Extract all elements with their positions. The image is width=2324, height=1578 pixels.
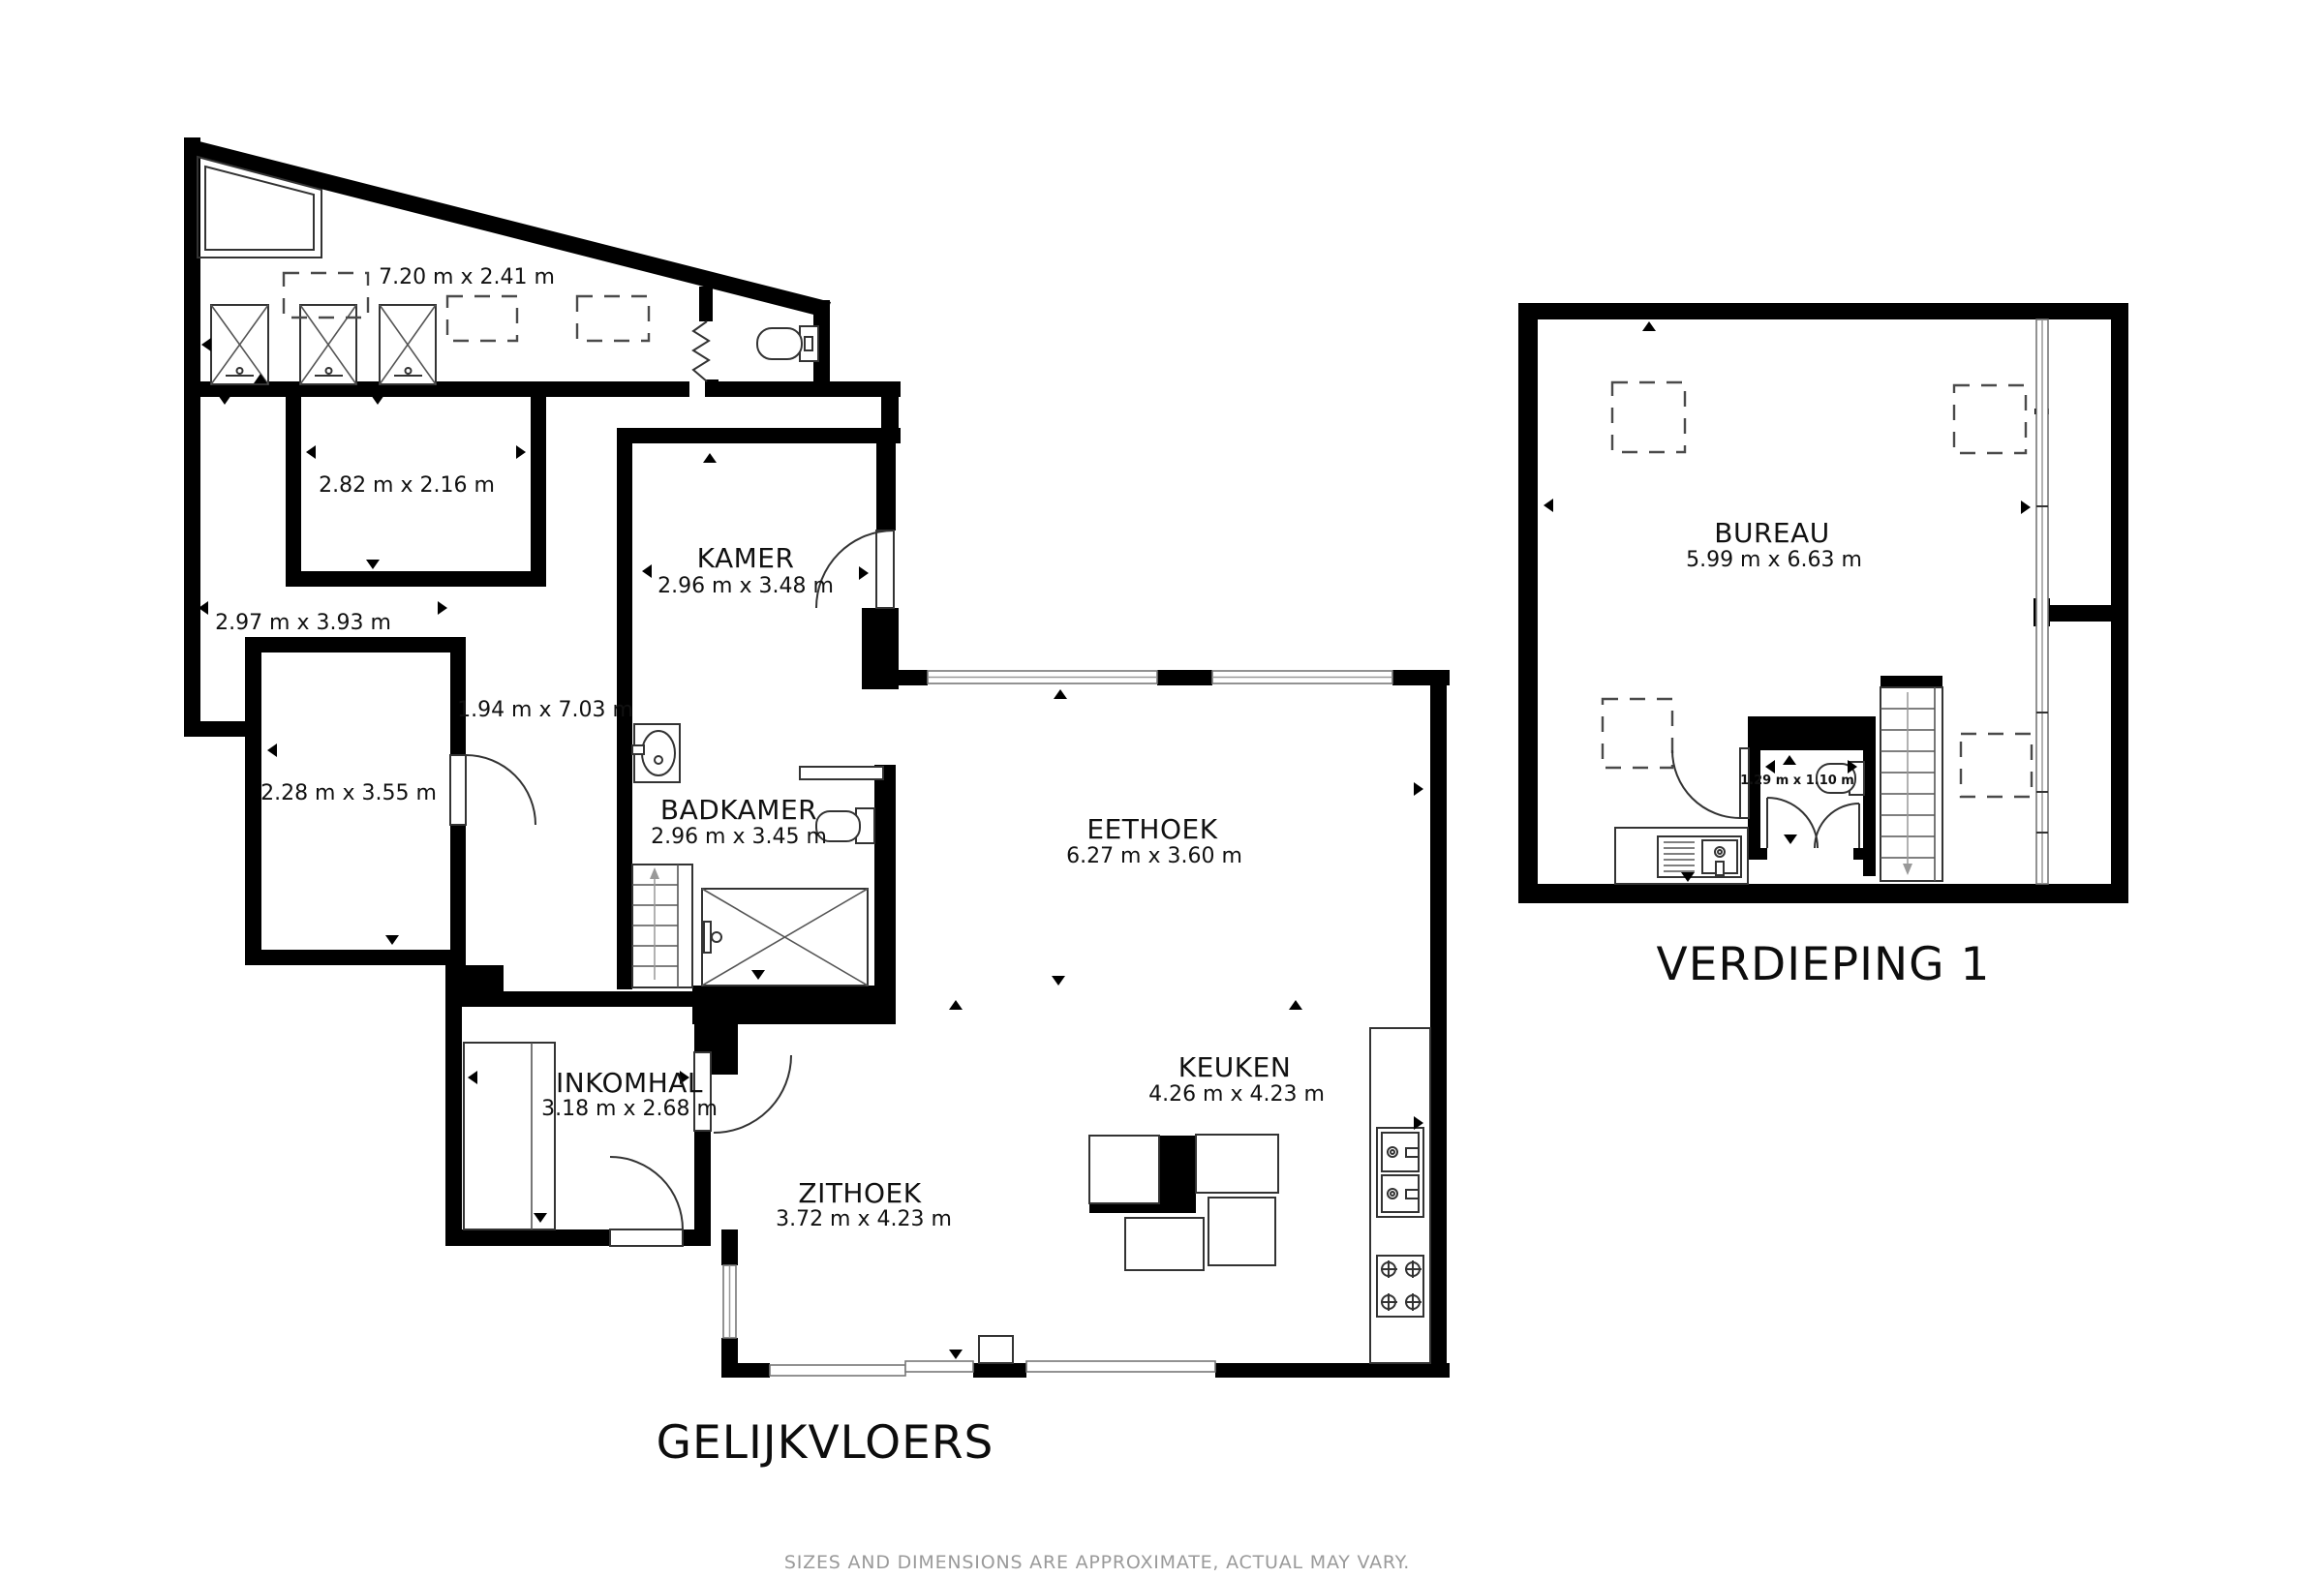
floorplan-canvas: 7.20 m x 2.41 m 2.82 m x 2.16 m 2.97 m x…: [0, 0, 2324, 1578]
kitchen-island-unit: [1208, 1198, 1275, 1265]
kamer-dims-label: 2.96 m x 3.48 m: [657, 574, 834, 598]
sink-icon: [632, 724, 680, 782]
storage-room-door: [450, 755, 535, 825]
eethoek-name-label: EETHOEK: [1086, 813, 1217, 845]
skylight-dashed-box: [447, 296, 517, 341]
bureau-door: [1672, 748, 1749, 818]
first-floor-plan: BUREAU 5.99 m x 6.63 m 1.29 m x 1.10 m V…: [1518, 303, 2128, 991]
skylight-dashed-box: [1612, 382, 1685, 452]
closet-icon: [211, 305, 268, 384]
front-door: [610, 1157, 683, 1246]
keuken-name-label: KEUKEN: [1178, 1051, 1292, 1083]
dimension-arrows: [1544, 321, 2031, 882]
staircase: [1881, 687, 1942, 881]
shelf-icon: [800, 767, 883, 779]
wardrobe-icon: [464, 1043, 555, 1229]
ground-floor-labels: 7.20 m x 2.41 m 2.82 m x 2.16 m 2.97 m x…: [215, 265, 1325, 1470]
inkomhal-name-label: INKOMHAL: [556, 1067, 703, 1099]
toilet-icon: [757, 326, 818, 361]
keuken-dims-label: 4.26 m x 4.23 m: [1148, 1082, 1325, 1107]
badkamer-name-label: BADKAMER: [660, 794, 817, 826]
disclaimer-text: SIZES AND DIMENSIONS ARE APPROXIMATE, AC…: [784, 1552, 1410, 1573]
inkomhal-dims-label: 3.18 m x 2.68 m: [541, 1097, 718, 1121]
closet-icon: [380, 305, 436, 384]
badkamer-fixtures: [632, 724, 883, 987]
first-floor-title: VERDIEPING 1: [1657, 938, 1991, 991]
room-282-dims-label: 2.82 m x 2.16 m: [319, 473, 495, 498]
bureau-name-label: BUREAU: [1714, 517, 1830, 549]
first-floor-window-strip: [2036, 319, 2048, 884]
zithoek-dims-label: 3.72 m x 4.23 m: [776, 1207, 952, 1231]
shower-icon: [702, 889, 868, 986]
skylight-dashed-box: [1961, 734, 2032, 797]
skylight-dashed-box: [577, 296, 649, 341]
staircase: [632, 865, 692, 987]
skylight-dashed-box: [1954, 385, 2026, 453]
cabinet-unit: [979, 1336, 1013, 1363]
wall-break-zigzag-icon: [693, 321, 709, 381]
double-sink-icon: [1377, 1128, 1423, 1217]
wc-dims-label: 1.29 m x 1.10 m: [1740, 774, 1854, 788]
kitchenette-icon: [1615, 828, 1748, 884]
zone-297-dims-label: 2.97 m x 3.93 m: [215, 611, 391, 635]
badkamer-dims-label: 2.96 m x 3.45 m: [651, 825, 827, 849]
ground-floor-title: GELIJKVLOERS: [657, 1416, 994, 1470]
eethoek-dims-label: 6.27 m x 3.60 m: [1066, 844, 1242, 868]
skylight-dashed-box: [1603, 699, 1672, 768]
room-228-dims-label: 2.28 m x 3.55 m: [260, 781, 437, 805]
bureau-dims-label: 5.99 m x 6.63 m: [1686, 548, 1862, 572]
zithoek-name-label: ZITHOEK: [798, 1177, 921, 1209]
floorplan-page: 7.20 m x 2.41 m 2.82 m x 2.16 m 2.97 m x…: [0, 0, 2324, 1578]
storage-dims-label: 7.20 m x 2.41 m: [379, 265, 555, 289]
wc-double-doors: [1767, 798, 1859, 848]
kitchen-island-unit: [1196, 1135, 1278, 1193]
hall-dims-label: 1.94 m x 7.03 m: [457, 698, 633, 722]
kamer-name-label: KAMER: [697, 542, 795, 574]
stove-icon: [1377, 1256, 1423, 1317]
ground-floor-plan: 7.20 m x 2.41 m 2.82 m x 2.16 m 2.97 m x…: [184, 137, 1450, 1470]
kitchen-island-unit: [1125, 1218, 1204, 1270]
kitchen-island-unit: [1089, 1136, 1159, 1203]
